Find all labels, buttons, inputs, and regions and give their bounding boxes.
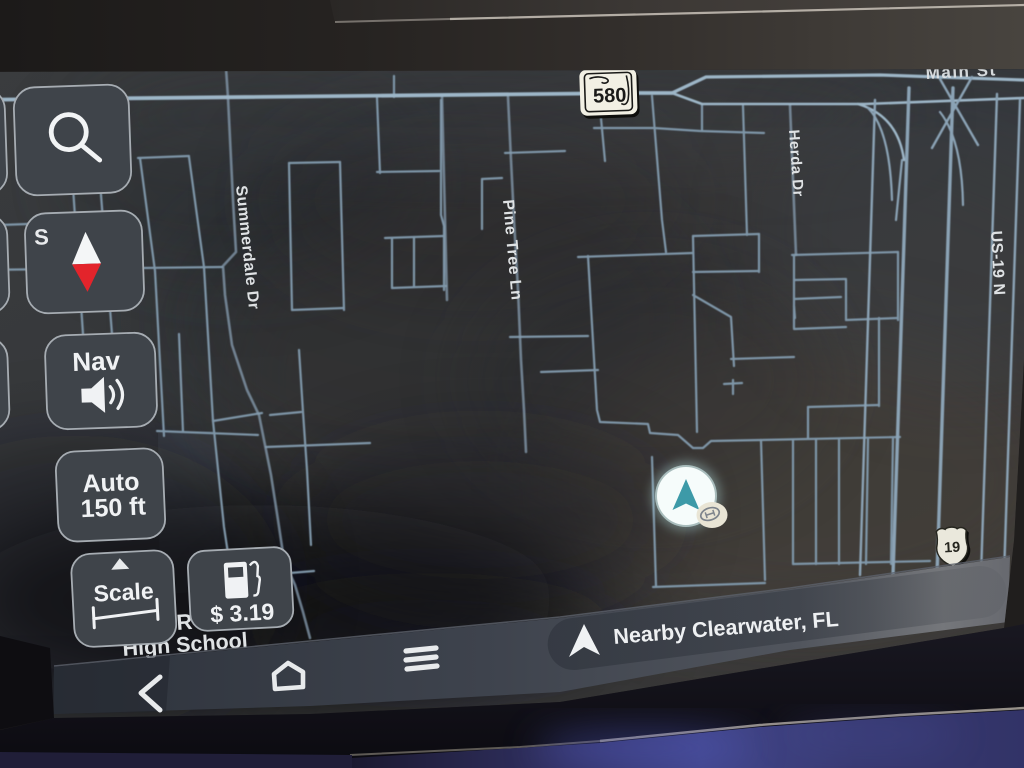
svg-text:Nav: Nav: [72, 345, 121, 377]
svg-text:150 ft: 150 ft: [80, 492, 147, 523]
svg-text:Scale: Scale: [93, 578, 154, 607]
svg-text:$ 3.19: $ 3.19: [210, 598, 275, 627]
svg-text:US-19 N: US-19 N: [987, 230, 1007, 296]
svg-text:19: 19: [944, 540, 961, 557]
svg-text:S: S: [34, 224, 50, 249]
svg-text:580: 580: [593, 84, 627, 107]
